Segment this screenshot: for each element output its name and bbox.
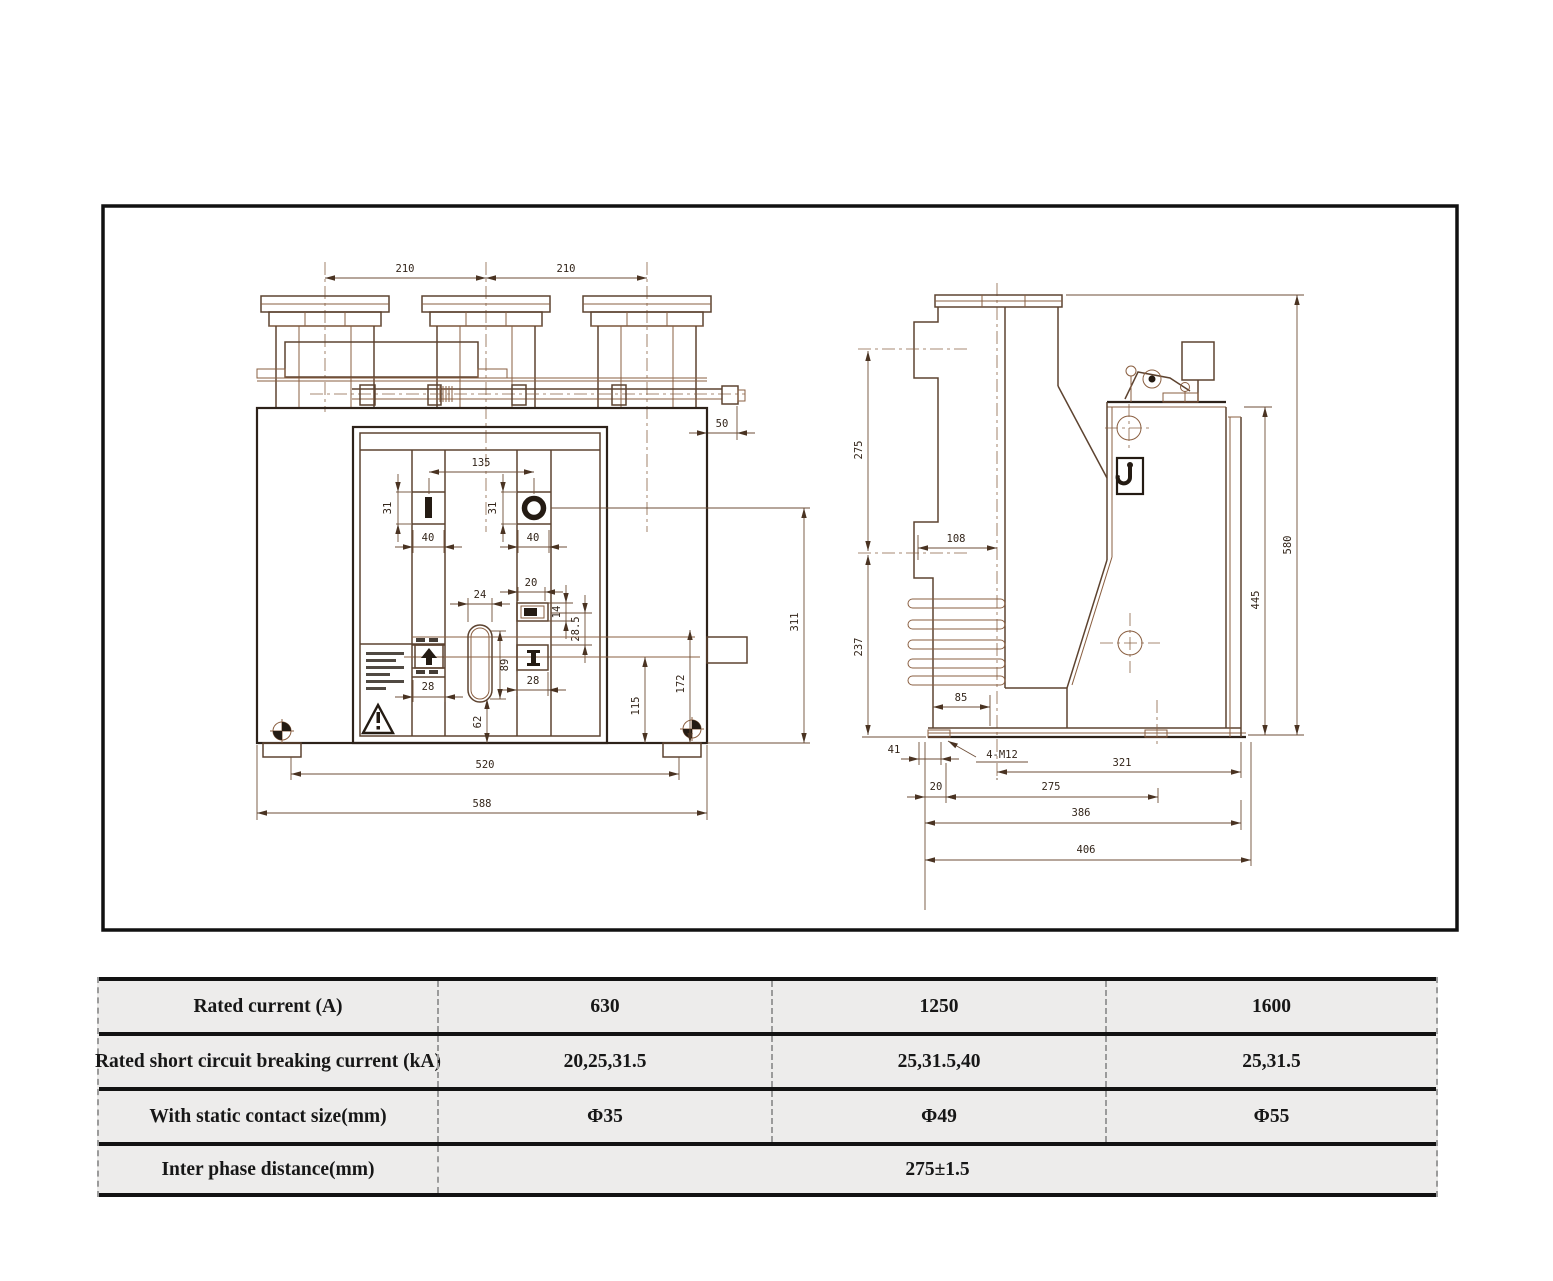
dim-pole-pitch-b: 210 xyxy=(557,263,576,275)
dim-sym-h-b: 31 xyxy=(487,502,499,515)
dim-base-step: 85 xyxy=(955,692,968,704)
close-indicator-icon xyxy=(425,497,432,518)
table-row: Rated current (A) 630 1250 1600 xyxy=(99,977,1436,1032)
dim-pole-offset: 108 xyxy=(947,533,966,545)
value-phase-distance: 275±1.5 xyxy=(437,1146,1436,1193)
dim-h-total: 580 xyxy=(1282,536,1294,555)
dim-sym-h-a: 31 xyxy=(382,502,394,515)
table-row: With static contact size(mm) Φ35 Φ49 Φ55 xyxy=(99,1087,1436,1142)
dim-arm-lower: 237 xyxy=(853,638,865,657)
table-row: Rated short circuit breaking current (kA… xyxy=(99,1032,1436,1087)
dim-depth-mid: 386 xyxy=(1072,807,1091,819)
dim-col-w: 28 xyxy=(422,681,435,693)
value-breaking-current-3: 25,31.5 xyxy=(1105,1036,1436,1087)
value-rated-current-1600: 1600 xyxy=(1105,981,1436,1032)
row-label-phase-distance: Inter phase distance(mm) xyxy=(99,1146,437,1193)
value-rated-current-630: 630 xyxy=(437,981,771,1032)
dim-depth-inner: 321 xyxy=(1113,757,1132,769)
dim-switch-span: 135 xyxy=(472,457,491,469)
dim-sym-w-a: 40 xyxy=(422,532,435,544)
dim-sym-w-b: 40 xyxy=(527,532,540,544)
dim-base-outer: 588 xyxy=(473,798,492,810)
dim-slot-gap: 28.5 xyxy=(570,616,582,641)
dim-oval-h: 89 xyxy=(499,659,511,672)
dim-bolt-spec: 4-M12 xyxy=(986,749,1018,761)
dim-base-inner: 520 xyxy=(476,759,495,771)
dim-arm-upper: 275 xyxy=(853,441,865,460)
page: 210 210 50 xyxy=(0,0,1553,1281)
value-contact-size-3: Φ55 xyxy=(1105,1091,1436,1142)
row-label-breaking-current: Rated short circuit breaking current (kA… xyxy=(99,1036,437,1087)
dim-port-w: 28 xyxy=(527,675,540,687)
value-rated-current-1250: 1250 xyxy=(771,981,1105,1032)
value-breaking-current-2: 25,31.5,40 xyxy=(771,1036,1105,1087)
dim-edge-offset: 20 xyxy=(930,781,943,793)
dim-h-lower: 115 xyxy=(630,697,642,716)
dim-hole-pitch: 275 xyxy=(1042,781,1061,793)
dim-foot-offset: 41 xyxy=(888,744,901,756)
dim-depth-outer: 406 xyxy=(1077,844,1096,856)
dim-h-mid: 172 xyxy=(675,675,687,694)
dim-oval-w: 24 xyxy=(474,589,487,601)
dim-shaft-ext: 50 xyxy=(716,418,729,430)
dim-oval-base: 62 xyxy=(472,716,484,729)
drawing-frame xyxy=(103,206,1457,930)
dim-pole-pitch-a: 210 xyxy=(396,263,415,275)
spec-table: Rated current (A) 630 1250 1600 Rated sh… xyxy=(97,977,1438,1197)
table-row: Inter phase distance(mm) 275±1.5 xyxy=(99,1142,1436,1197)
row-label-rated-current: Rated current (A) xyxy=(99,981,437,1032)
dim-slot-h: 14 xyxy=(551,606,563,619)
value-breaking-current-1: 20,25,31.5 xyxy=(437,1036,771,1087)
value-contact-size-1: Φ35 xyxy=(437,1091,771,1142)
dim-h-tank: 445 xyxy=(1250,591,1262,610)
value-contact-size-2: Φ49 xyxy=(771,1091,1105,1142)
row-label-contact-size: With static contact size(mm) xyxy=(99,1091,437,1142)
dim-h-upper: 311 xyxy=(789,613,801,632)
dim-slot-top-w: 20 xyxy=(525,577,538,589)
